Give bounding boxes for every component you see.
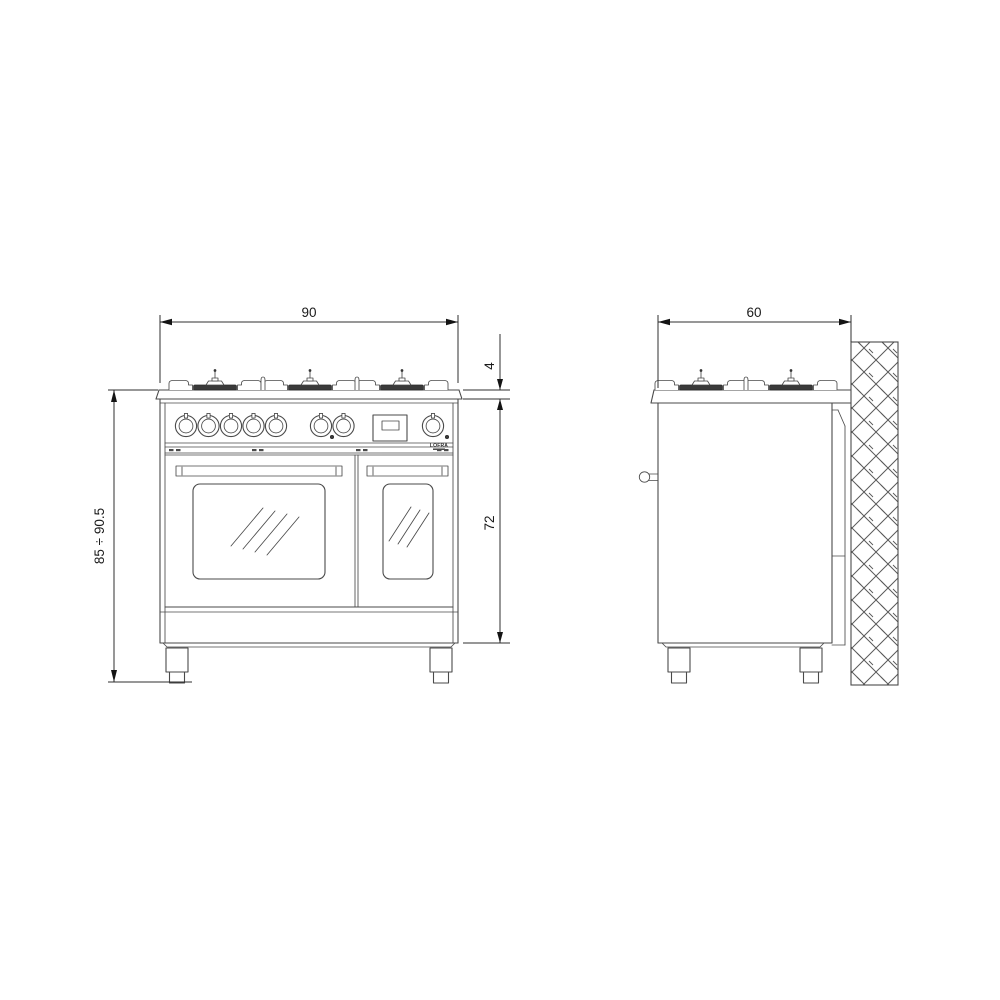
dimension-label-72: 72 bbox=[482, 515, 497, 530]
front-hob-top bbox=[156, 390, 462, 399]
brand-logo: LOFRA bbox=[430, 443, 448, 450]
dimension-label-4: 4 bbox=[482, 362, 497, 370]
control-knob bbox=[175, 413, 196, 436]
side-burner-rear bbox=[745, 370, 837, 391]
front-leg-left bbox=[166, 648, 188, 683]
dimension-hob-thickness: 4 bbox=[463, 334, 510, 399]
front-burner-right bbox=[356, 370, 448, 391]
lofra-logo-text: LOFRA bbox=[430, 443, 448, 449]
oven-door-right-handle bbox=[367, 466, 448, 476]
side-leg-rear bbox=[800, 648, 822, 683]
side-view bbox=[639, 342, 898, 685]
control-knob bbox=[243, 413, 264, 436]
side-door-handle bbox=[639, 472, 658, 482]
front-leg-right bbox=[430, 648, 452, 683]
clock-display-window bbox=[382, 421, 399, 430]
side-leg-front bbox=[668, 648, 690, 683]
control-knob bbox=[220, 413, 241, 436]
pan-support-edge bbox=[744, 377, 748, 390]
control-knob bbox=[422, 413, 443, 436]
front-burner-left bbox=[169, 370, 261, 391]
control-knob bbox=[198, 413, 219, 436]
pan-support-edge bbox=[261, 377, 265, 390]
oven-door-left-window bbox=[193, 484, 325, 579]
front-view: LOFRA bbox=[156, 370, 462, 684]
side-body bbox=[658, 403, 845, 647]
technical-drawing-page: LOFRA bbox=[0, 0, 1000, 1000]
pan-support-edge bbox=[355, 377, 359, 390]
oven-door-left bbox=[176, 466, 342, 579]
side-burner-front bbox=[655, 370, 747, 391]
side-hob-top bbox=[651, 390, 851, 403]
oven-door-left-handle bbox=[176, 466, 342, 476]
oven-door-right bbox=[367, 466, 448, 579]
dimension-label-total-height: 85 ÷ 90.5 bbox=[92, 508, 107, 564]
indicator-dot bbox=[445, 435, 448, 438]
dimension-body-height: 72 bbox=[463, 399, 510, 643]
dimension-total-height: 85 ÷ 90.5 bbox=[92, 390, 192, 682]
range-cooker-dimension-drawing: LOFRA bbox=[0, 0, 1000, 1000]
control-panel bbox=[165, 413, 453, 447]
oven-doors bbox=[165, 455, 453, 607]
control-knob bbox=[310, 413, 331, 436]
control-knob bbox=[265, 413, 286, 436]
dimension-label-60: 60 bbox=[746, 305, 761, 320]
dimension-side-depth: 60 bbox=[658, 305, 851, 388]
front-burner-center bbox=[264, 370, 356, 391]
indicator-dot bbox=[330, 435, 333, 438]
control-knob bbox=[333, 413, 354, 436]
oven-door-right-window bbox=[383, 484, 433, 579]
vent-band bbox=[165, 449, 453, 453]
dimension-label-90: 90 bbox=[301, 305, 316, 320]
wall-section-hatch bbox=[851, 342, 898, 685]
